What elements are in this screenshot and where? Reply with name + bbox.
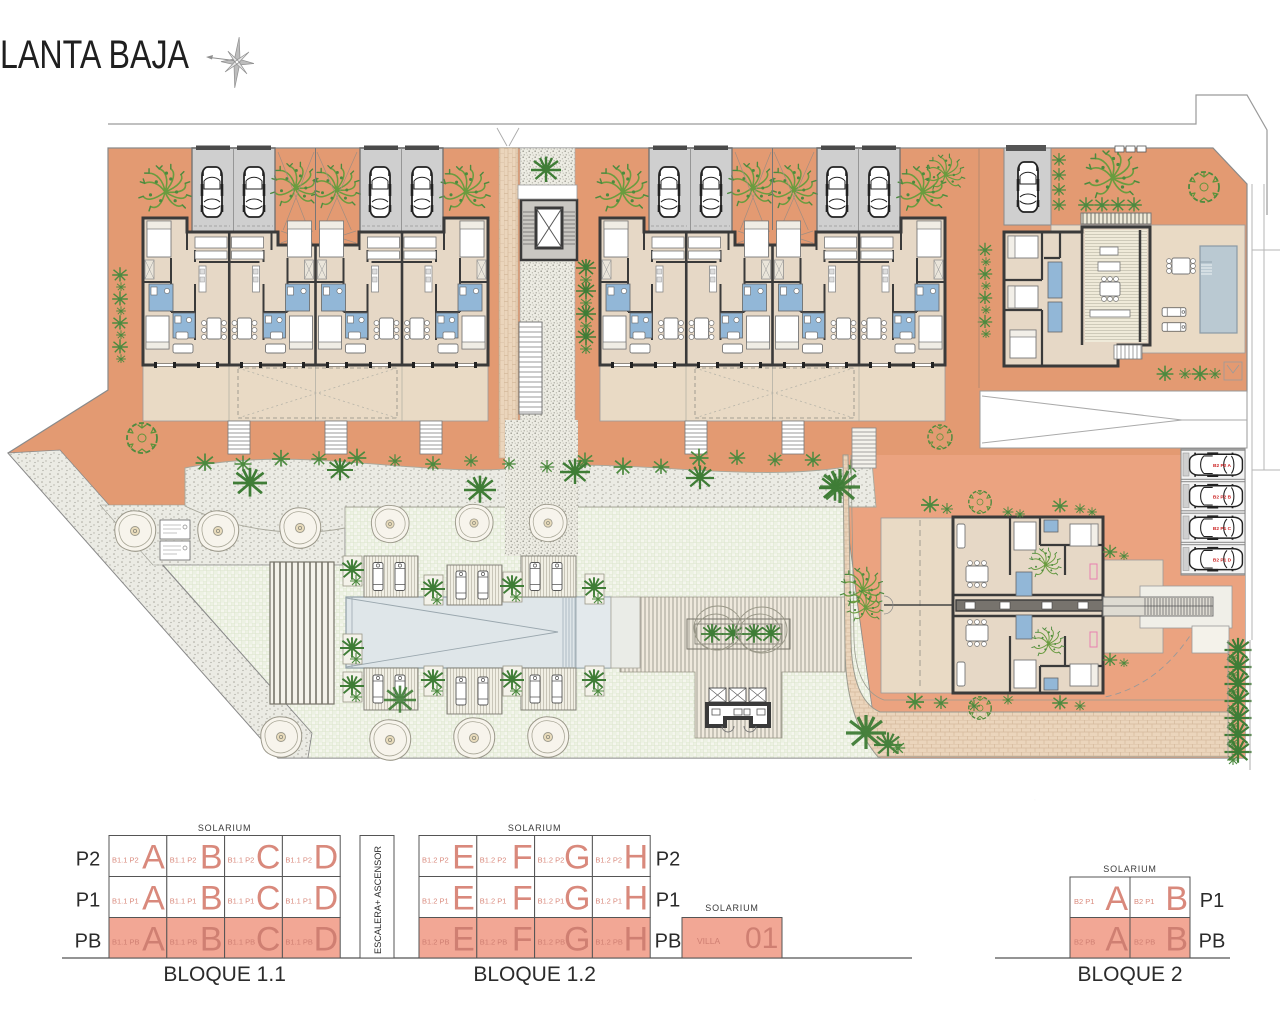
svg-text:F: F — [512, 839, 533, 877]
svg-text:C: C — [256, 880, 281, 918]
svg-text:P2: P2 — [76, 849, 100, 871]
svg-text:SOLARIUM: SOLARIUM — [1103, 864, 1156, 874]
svg-text:C: C — [256, 839, 281, 877]
svg-text:SOLARIUM: SOLARIUM — [508, 823, 561, 833]
svg-text:F: F — [512, 880, 533, 918]
svg-text:BLOQUE 1.1: BLOQUE 1.1 — [163, 963, 286, 986]
svg-text:D: D — [314, 921, 339, 959]
svg-text:LANTA BAJA: LANTA BAJA — [0, 33, 189, 77]
svg-text:A: A — [1105, 921, 1128, 959]
svg-text:ESCALERA+ ASCENSOR: ESCALERA+ ASCENSOR — [373, 846, 384, 954]
svg-text:B2 P1: B2 P1 — [1074, 897, 1094, 906]
svg-text:VILLA: VILLA — [697, 936, 720, 946]
svg-text:P1: P1 — [1200, 890, 1224, 912]
svg-text:SOLARIUM: SOLARIUM — [705, 903, 758, 913]
svg-text:B1.2 P2: B1.2 P2 — [480, 856, 507, 865]
svg-text:B2 P1 C: B2 P1 C — [1213, 526, 1232, 532]
svg-text:BLOQUE 1.2: BLOQUE 1.2 — [473, 963, 596, 986]
svg-text:G: G — [564, 839, 590, 877]
svg-text:E: E — [452, 839, 475, 877]
svg-text:01: 01 — [745, 922, 778, 955]
svg-text:B2 P1: B2 P1 — [1134, 897, 1154, 906]
svg-text:B2 P1 D: B2 P1 D — [1213, 558, 1232, 564]
svg-text:B1.1 PB: B1.1 PB — [170, 938, 198, 947]
svg-text:SOLARIUM: SOLARIUM — [198, 823, 251, 833]
svg-text:B1.2 P1: B1.2 P1 — [422, 897, 449, 906]
svg-text:B1.2 PB: B1.2 PB — [480, 938, 508, 947]
svg-text:B1.1 PB: B1.1 PB — [285, 938, 313, 947]
svg-text:H: H — [624, 880, 649, 918]
svg-text:B1.1 P2: B1.1 P2 — [228, 856, 255, 865]
svg-text:A: A — [142, 921, 165, 959]
svg-text:B1.1 PB: B1.1 PB — [112, 938, 140, 947]
svg-text:C: C — [256, 921, 281, 959]
svg-text:PB: PB — [1199, 931, 1226, 953]
svg-text:B1.1 PB: B1.1 PB — [228, 938, 256, 947]
svg-text:B1.2 PB: B1.2 PB — [538, 938, 566, 947]
svg-text:H: H — [624, 839, 649, 877]
svg-text:B1.2 P1: B1.2 P1 — [538, 897, 565, 906]
svg-text:B2 P2 B: B2 P2 B — [1213, 495, 1232, 501]
svg-text:B1.1 P1: B1.1 P1 — [285, 897, 312, 906]
svg-text:B1.2 P1: B1.2 P1 — [480, 897, 507, 906]
svg-text:B: B — [200, 839, 223, 877]
svg-text:D: D — [314, 839, 339, 877]
svg-text:B2 PB: B2 PB — [1134, 938, 1155, 947]
svg-text:B1.1 P1: B1.1 P1 — [170, 897, 197, 906]
svg-text:B1.2 P1: B1.2 P1 — [595, 897, 622, 906]
svg-text:A: A — [142, 839, 165, 877]
svg-text:B1.2 P2: B1.2 P2 — [422, 856, 449, 865]
svg-text:H: H — [624, 921, 649, 959]
svg-text:B1.1 P2: B1.1 P2 — [285, 856, 312, 865]
svg-text:BLOQUE 2: BLOQUE 2 — [1077, 963, 1182, 986]
svg-text:A: A — [142, 880, 165, 918]
svg-text:P2: P2 — [656, 849, 680, 871]
svg-text:B1.1 P2: B1.1 P2 — [112, 856, 139, 865]
svg-text:B1.1 P1: B1.1 P1 — [112, 897, 139, 906]
svg-text:B1.2 P2: B1.2 P2 — [538, 856, 565, 865]
svg-text:G: G — [564, 921, 590, 959]
svg-text:B1.2 PB: B1.2 PB — [595, 938, 623, 947]
svg-text:P1: P1 — [76, 890, 100, 912]
svg-text:B1.1 P1: B1.1 P1 — [228, 897, 255, 906]
svg-text:B: B — [1165, 880, 1188, 918]
svg-text:E: E — [452, 921, 475, 959]
svg-text:B1.2 PB: B1.2 PB — [422, 938, 450, 947]
svg-text:PB: PB — [75, 931, 102, 953]
svg-text:B: B — [200, 921, 223, 959]
svg-text:D: D — [314, 880, 339, 918]
svg-text:B1.2 P2: B1.2 P2 — [595, 856, 622, 865]
svg-text:B: B — [1165, 921, 1188, 959]
svg-text:E: E — [452, 880, 475, 918]
svg-text:G: G — [564, 880, 590, 918]
svg-text:P1: P1 — [656, 890, 680, 912]
svg-text:B1.1 P2: B1.1 P2 — [170, 856, 197, 865]
svg-text:PB: PB — [655, 931, 682, 953]
svg-text:B: B — [200, 880, 223, 918]
svg-text:A: A — [1105, 880, 1128, 918]
svg-text:B2 PB: B2 PB — [1074, 938, 1095, 947]
svg-text:B2 P2 A: B2 P2 A — [1213, 463, 1231, 469]
svg-text:F: F — [512, 921, 533, 959]
